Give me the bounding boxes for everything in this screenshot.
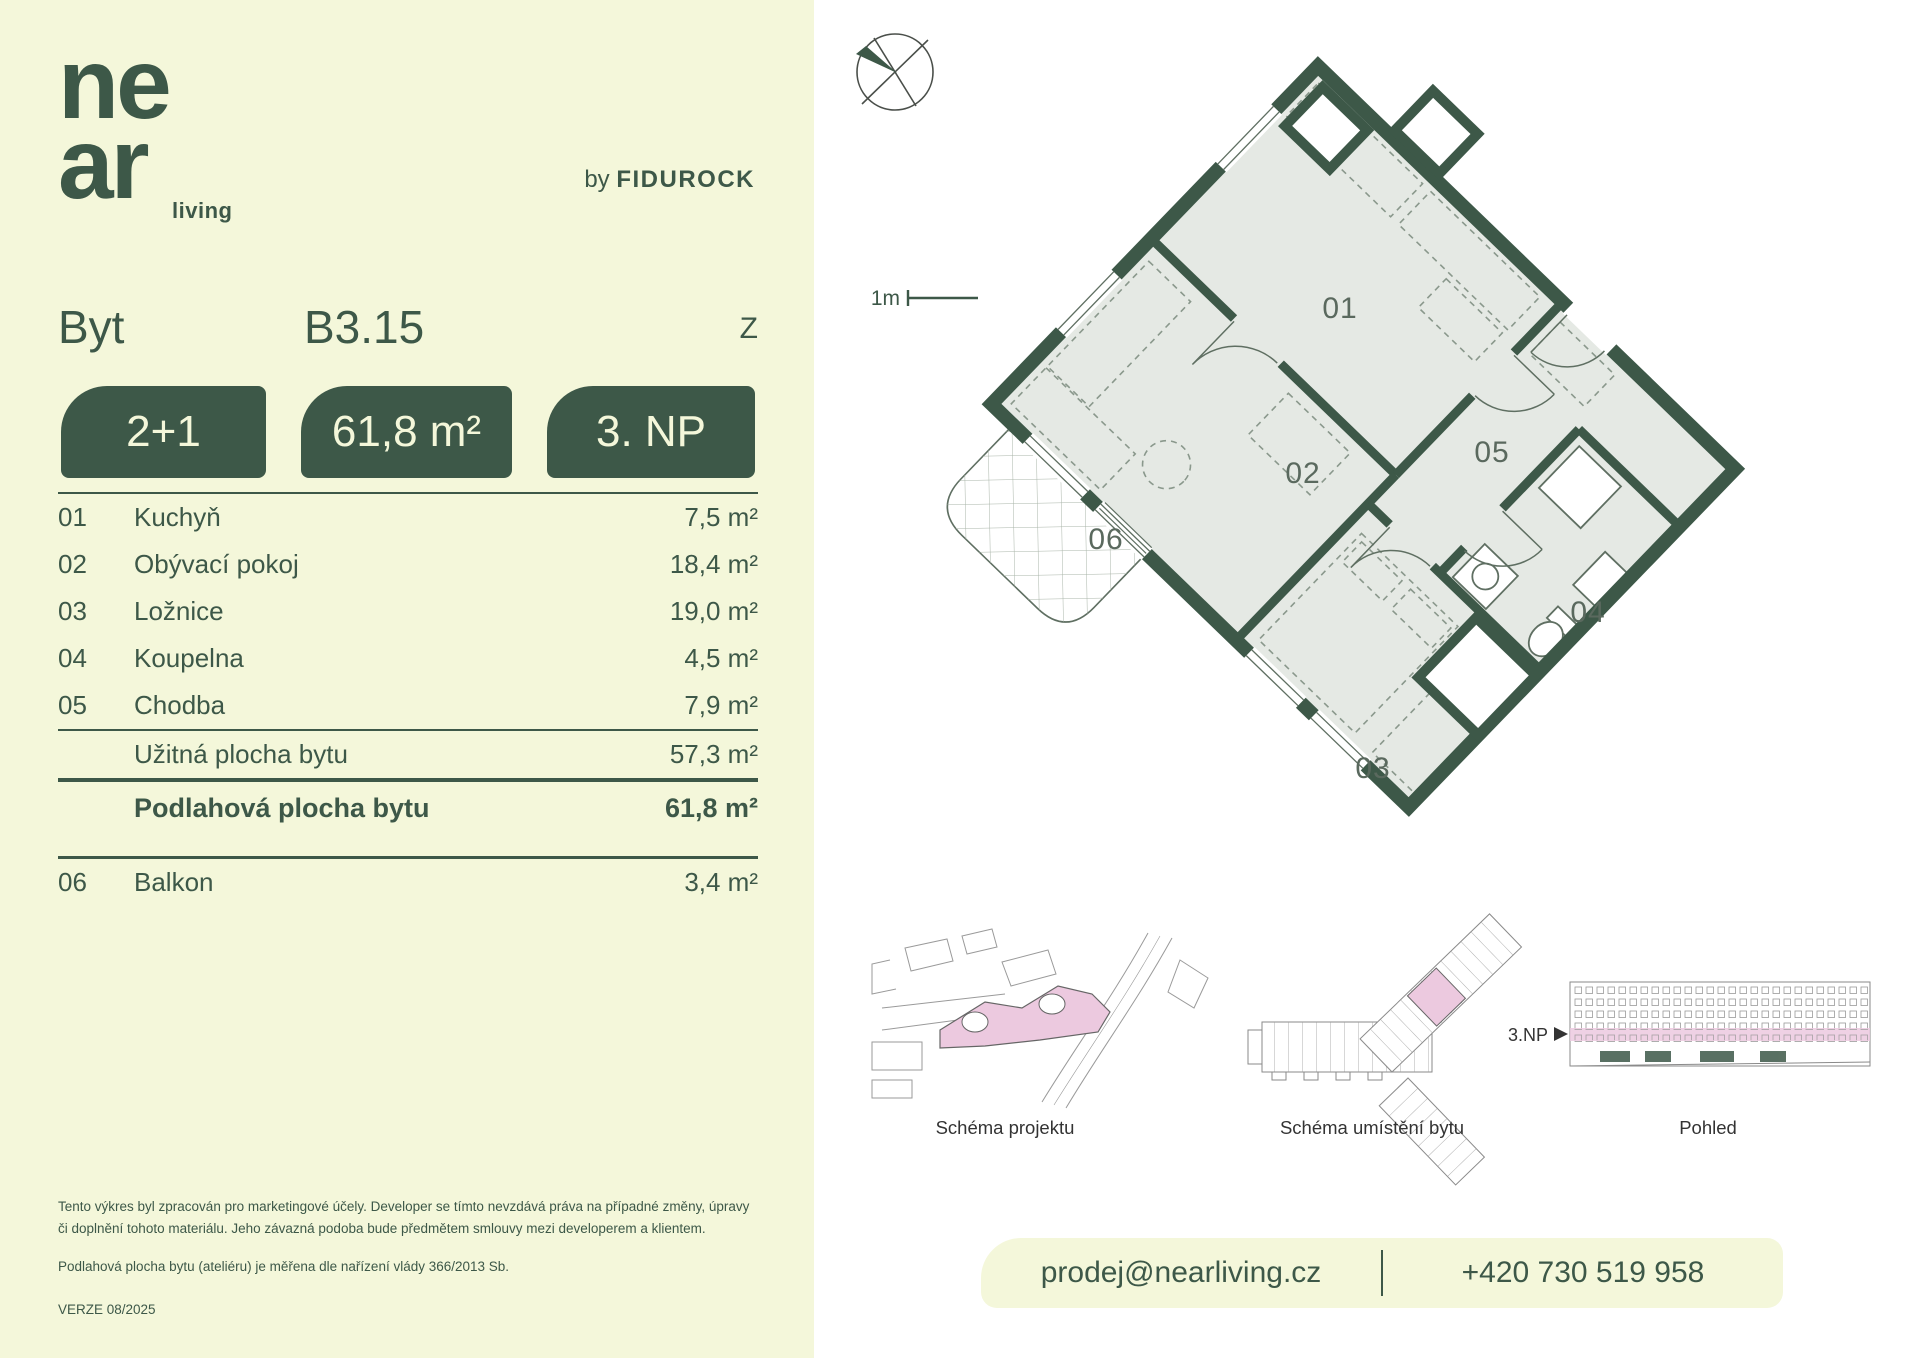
contact-bar: prodej@nearliving.cz +420 730 519 958 bbox=[981, 1238, 1783, 1308]
layout-badge: 2+1 bbox=[61, 386, 266, 478]
usable-label: Užitná plocha bytu bbox=[134, 739, 670, 770]
brochure-page: ne ar living by FIDUROCK Byt B3.15 Z 2+1… bbox=[0, 0, 1920, 1358]
balcony-row: 06 Balkon 3,4 m² bbox=[58, 859, 758, 906]
label-room-05: 05 bbox=[1474, 436, 1509, 469]
unit-location-schematic bbox=[1248, 914, 1521, 1185]
room-table: 01 Kuchyň 7,5 m² 02 Obývací pokoj 18,4 m… bbox=[58, 492, 758, 906]
room-num: 01 bbox=[58, 502, 134, 533]
room-area: 3,4 m² bbox=[684, 867, 758, 898]
room-num: 04 bbox=[58, 643, 134, 674]
total-area-row: Podlahová plocha bytu 61,8 m² bbox=[58, 782, 758, 834]
unit-caption: Schéma umístění bytu bbox=[1280, 1117, 1464, 1138]
unit-badges: 2+1 61,8 m² 3. NP bbox=[61, 386, 755, 478]
label-room-06: 06 bbox=[1088, 523, 1123, 556]
measurement-note: Podlahová plocha bytu (ateliéru) je měře… bbox=[58, 1256, 758, 1278]
unit-type-label: Byt bbox=[58, 300, 124, 354]
elevation-schematic: 3.NP bbox=[1508, 982, 1870, 1066]
usable-area-row: Užitná plocha bytu 57,3 m² bbox=[58, 731, 758, 778]
label-room-03: 03 bbox=[1355, 752, 1390, 785]
room-area: 19,0 m² bbox=[670, 596, 758, 627]
room-name: Obývací pokoj bbox=[134, 549, 670, 580]
logo-suffix: living bbox=[172, 198, 232, 224]
total-value: 61,8 m² bbox=[665, 793, 758, 824]
by-prefix: by bbox=[584, 166, 616, 193]
schematic-captions: Schéma projektu Schéma umístění bytu Poh… bbox=[936, 1117, 1737, 1138]
room-num: 05 bbox=[58, 690, 134, 721]
scale-bar: 1m bbox=[871, 287, 978, 310]
apartment-floor bbox=[992, 66, 1736, 807]
near-living-logo: ne ar bbox=[58, 44, 169, 204]
room-area: 18,4 m² bbox=[670, 549, 758, 580]
room-name: Chodba bbox=[134, 690, 684, 721]
unit-code: B3.15 bbox=[304, 300, 424, 354]
floor-marker-arrow-icon bbox=[1554, 1027, 1568, 1041]
label-room-02: 02 bbox=[1285, 457, 1320, 490]
orientation-label: Z bbox=[740, 312, 758, 346]
area-badge: 61,8 m² bbox=[301, 386, 512, 478]
label-room-04: 04 bbox=[1570, 596, 1605, 629]
room-area: 7,5 m² bbox=[684, 502, 758, 533]
table-row: 01 Kuchyň 7,5 m² bbox=[58, 494, 758, 541]
project-caption: Schéma projektu bbox=[936, 1117, 1075, 1138]
footnotes: Tento výkres byl zpracován pro marketing… bbox=[58, 1196, 758, 1320]
info-panel: ne ar living by FIDUROCK Byt B3.15 Z 2+1… bbox=[0, 0, 814, 1358]
table-row: 02 Obývací pokoj 18,4 m² bbox=[58, 541, 758, 588]
developer-brand: by FIDUROCK bbox=[584, 166, 755, 194]
table-row: 05 Chodba 7,9 m² bbox=[58, 682, 758, 729]
room-name: Ložnice bbox=[134, 596, 670, 627]
table-row: 04 Koupelna 4,5 m² bbox=[58, 635, 758, 682]
contact-phone[interactable]: +420 730 519 958 bbox=[1383, 1256, 1783, 1290]
room-area: 4,5 m² bbox=[684, 643, 758, 674]
table-spacer bbox=[58, 834, 758, 856]
floor-marker-label: 3.NP bbox=[1508, 1025, 1548, 1045]
room-num: 06 bbox=[58, 867, 134, 898]
compass-icon bbox=[856, 34, 933, 110]
room-num: 03 bbox=[58, 596, 134, 627]
room-name: Kuchyň bbox=[134, 502, 684, 533]
room-name: Balkon bbox=[134, 867, 684, 898]
room-num: 02 bbox=[58, 549, 134, 580]
project-highlight-footprint bbox=[940, 986, 1110, 1048]
disclaimer-text: Tento výkres byl zpracován pro marketing… bbox=[58, 1196, 758, 1239]
version-label: VERZE 08/2025 bbox=[58, 1299, 758, 1321]
floor-badge: 3. NP bbox=[547, 386, 755, 478]
room-area: 7,9 m² bbox=[684, 690, 758, 721]
table-row: 03 Ložnice 19,0 m² bbox=[58, 588, 758, 635]
fidurock-wordmark: FIDUROCK bbox=[616, 166, 755, 193]
scale-label: 1m bbox=[871, 287, 900, 310]
label-room-01: 01 bbox=[1322, 292, 1357, 325]
usable-value: 57,3 m² bbox=[670, 739, 758, 770]
elevation-caption: Pohled bbox=[1679, 1117, 1737, 1138]
total-label: Podlahová plocha bytu bbox=[134, 793, 665, 824]
apartment-plan bbox=[906, 16, 1778, 890]
contact-email[interactable]: prodej@nearliving.cz bbox=[981, 1256, 1381, 1290]
room-name: Koupelna bbox=[134, 643, 684, 674]
unit-header: Byt B3.15 Z bbox=[58, 300, 758, 356]
